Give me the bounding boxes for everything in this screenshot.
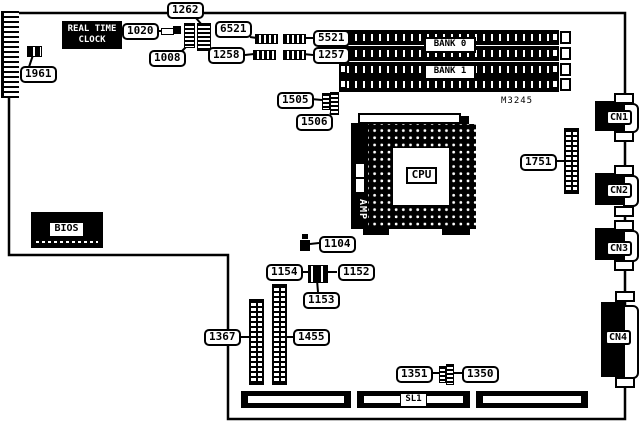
simm-clip — [553, 66, 557, 72]
rtc-label-line1: REAL TIME — [62, 24, 122, 35]
simm-clip — [341, 66, 345, 72]
simm-post — [560, 78, 571, 91]
simm-contacts — [347, 81, 551, 88]
mount-tab — [615, 377, 635, 388]
callout-1104: 1104 — [319, 236, 356, 253]
simm-post — [560, 47, 571, 60]
simm-post — [560, 63, 571, 76]
mount-tab — [614, 165, 634, 176]
component-1104-cap — [302, 234, 308, 239]
amp-brand-label: AMP — [351, 191, 368, 228]
component-1961 — [27, 46, 42, 57]
callout-1020: 1020 — [122, 23, 159, 40]
sl1-label: SL1 — [400, 393, 427, 407]
mount-tab — [614, 260, 634, 271]
bios-socket-mark — [36, 241, 98, 243]
callout-1506: 1506 — [296, 114, 333, 131]
simm-clip — [553, 81, 557, 87]
zif-lever-pad — [355, 163, 365, 178]
callout-1258: 1258 — [208, 47, 245, 64]
real-time-clock-chip: REAL TIME CLOCK — [62, 21, 122, 49]
rtc-label-line2: CLOCK — [62, 35, 122, 46]
cn3-label: CN3 — [606, 241, 632, 256]
simm-post — [560, 31, 571, 44]
cpu-retention-latch — [460, 116, 469, 124]
jumper-1257 — [283, 50, 306, 60]
mount-tab — [614, 131, 634, 142]
mount-tab — [614, 220, 634, 231]
bios-label: BIOS — [49, 222, 84, 237]
model-number: M3245 — [501, 96, 533, 106]
callout-1961: 1961 — [20, 66, 57, 83]
callout-5521: 5521 — [313, 30, 350, 47]
cn2-label: CN2 — [606, 183, 632, 198]
mount-tab — [615, 291, 635, 302]
callout-6521: 6521 — [215, 21, 252, 38]
callout-1350: 1350 — [462, 366, 499, 383]
callout-1505: 1505 — [277, 92, 314, 109]
jumper-1258 — [253, 50, 276, 60]
component-1020-body — [161, 28, 174, 35]
header-1751 — [564, 128, 579, 194]
bank1-label: BANK 1 — [424, 64, 476, 80]
callout-1152: 1152 — [338, 264, 375, 281]
connector-1262 — [197, 23, 211, 51]
jumper-5521 — [283, 34, 306, 44]
callout-1154: 1154 — [266, 264, 303, 281]
socket-foot — [442, 229, 470, 235]
callout-1367: 1367 — [204, 329, 241, 346]
simm-clip — [553, 34, 557, 40]
motherboard-diagram: REAL TIME CLOCK BANK 0 BANK 1 M3245 CPU … — [0, 0, 639, 427]
callout-1351: 1351 — [396, 366, 433, 383]
jumper-6521 — [255, 34, 278, 44]
socket-foot — [363, 229, 389, 235]
slot-opening — [483, 396, 581, 403]
component-1154 — [308, 265, 328, 283]
component-1351 — [439, 366, 446, 383]
header-1455 — [272, 284, 287, 385]
connector-1008 — [184, 23, 195, 48]
simm-clip — [553, 50, 557, 56]
header-1367 — [249, 299, 264, 385]
cn1-label: CN1 — [606, 110, 632, 125]
mount-tab — [614, 206, 634, 217]
cpu-label: CPU — [406, 167, 437, 184]
cpu-retention-bar — [358, 113, 461, 124]
board-edge-serration — [1, 11, 19, 98]
slot-opening — [248, 396, 344, 403]
component-1505 — [322, 93, 330, 110]
callout-1455: 1455 — [293, 329, 330, 346]
component-1506 — [330, 92, 339, 115]
callout-1008: 1008 — [149, 50, 186, 67]
component-1350 — [446, 364, 454, 385]
callout-1751: 1751 — [520, 154, 557, 171]
expansion-slot-3 — [476, 391, 588, 408]
bank0-label: BANK 0 — [424, 37, 476, 53]
component-1104 — [300, 240, 310, 251]
cn4-label: CN4 — [605, 330, 631, 345]
callout-1262: 1262 — [167, 2, 204, 19]
callout-1257: 1257 — [313, 47, 350, 64]
mount-tab — [614, 93, 634, 104]
component-1020-cap — [173, 26, 181, 34]
simm-clip — [341, 81, 345, 87]
callout-1153: 1153 — [303, 292, 340, 309]
expansion-slot-1 — [241, 391, 351, 408]
